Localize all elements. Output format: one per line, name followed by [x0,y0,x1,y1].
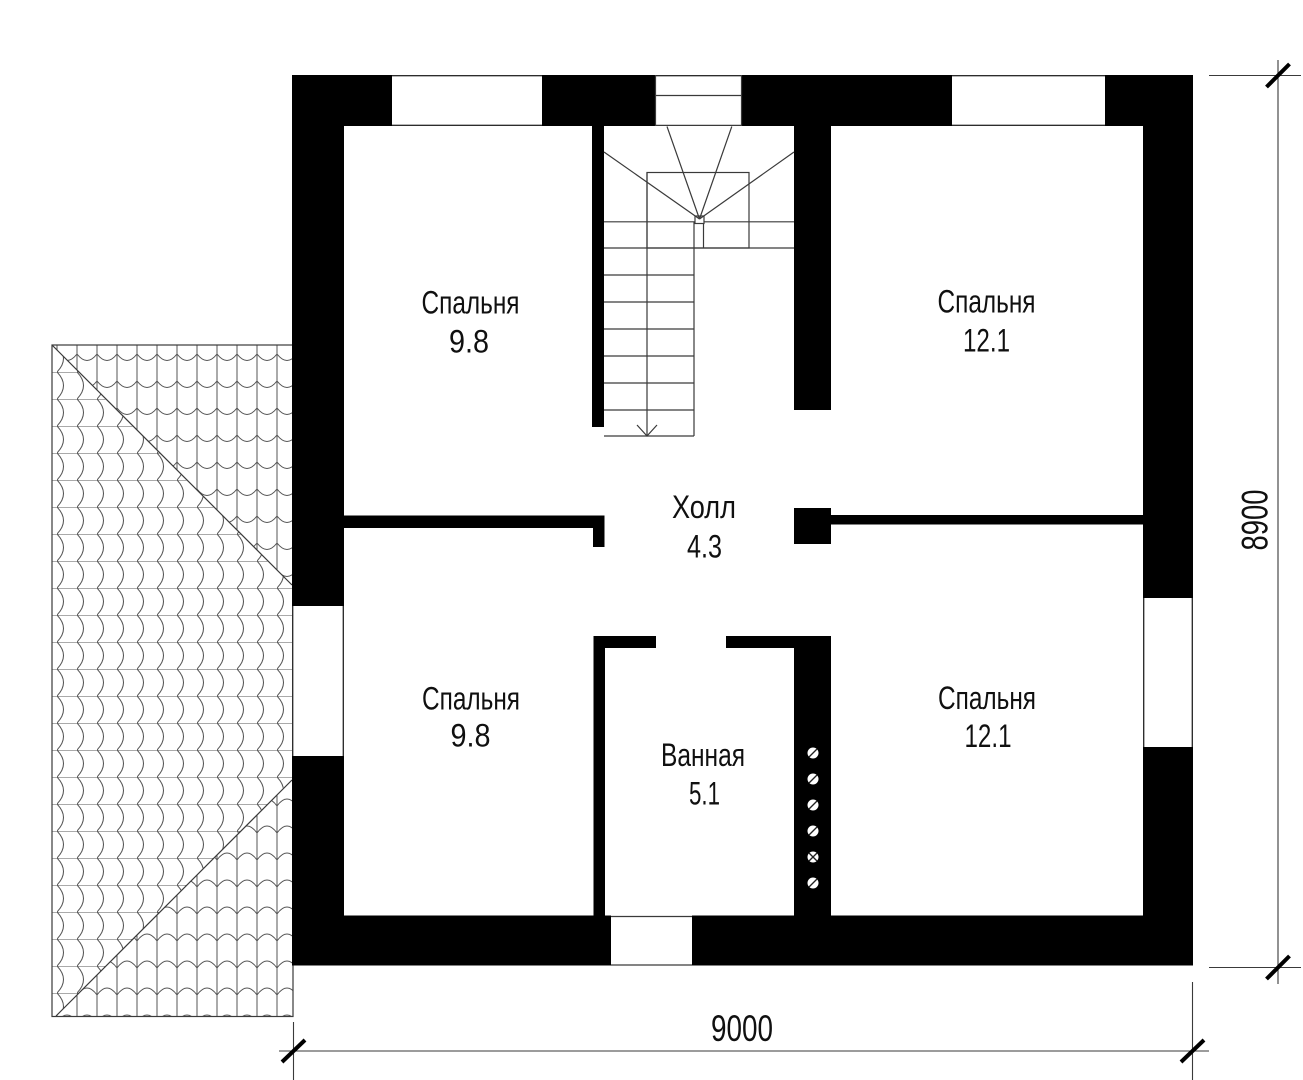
svg-text:Спальня: Спальня [938,284,1036,320]
svg-text:Спальня: Спальня [938,680,1036,716]
svg-text:Спальня: Спальня [422,681,520,717]
svg-text:12.1: 12.1 [965,718,1012,754]
svg-text:5.1: 5.1 [689,776,720,812]
svg-text:12.1: 12.1 [963,323,1010,359]
svg-text:Холл: Холл [672,489,736,525]
svg-text:9.8: 9.8 [451,718,491,754]
svg-text:Ванная: Ванная [661,737,745,773]
svg-text:Спальня: Спальня [422,285,520,321]
svg-text:4.3: 4.3 [687,529,722,565]
svg-text:9.8: 9.8 [449,324,489,360]
svg-text:9000: 9000 [711,1008,773,1049]
svg-text:8900: 8900 [1235,490,1276,551]
